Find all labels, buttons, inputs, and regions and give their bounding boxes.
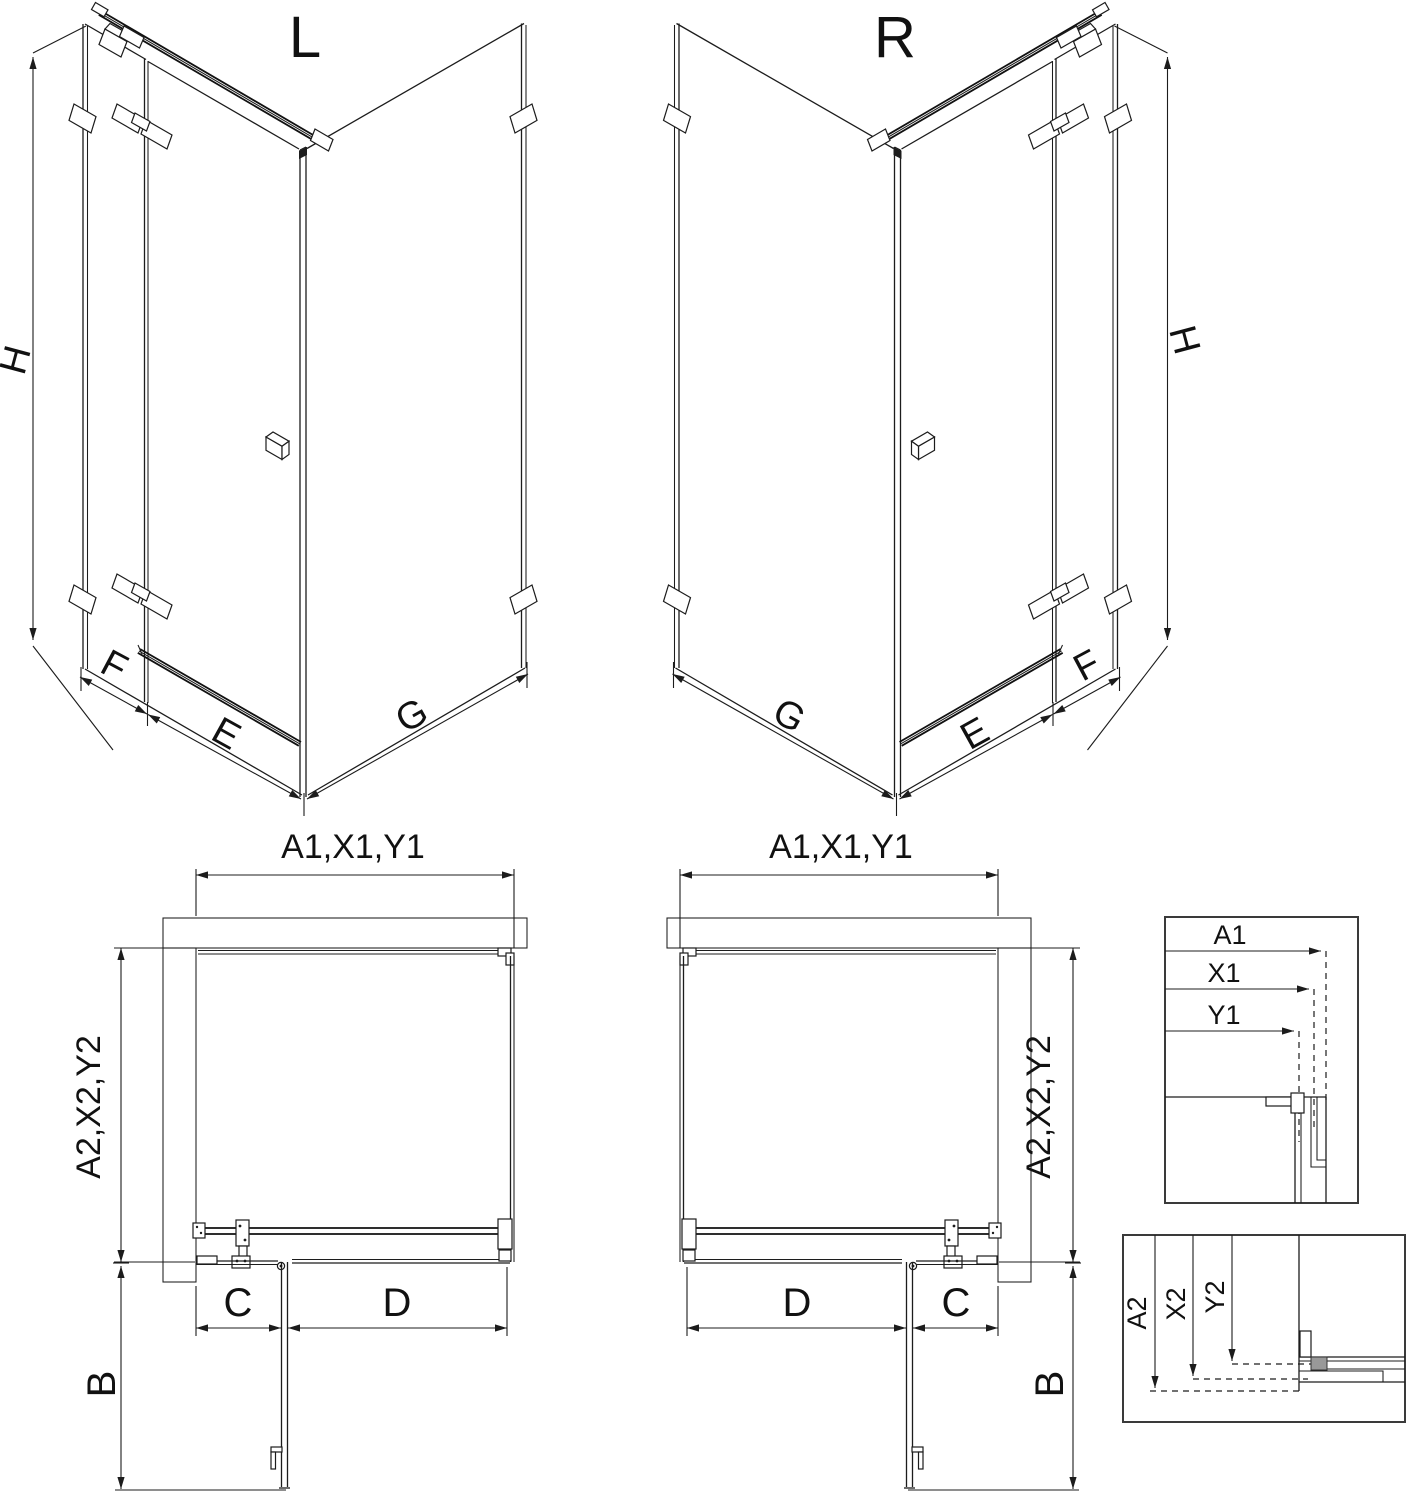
door-swing-label-left: B: [80, 1371, 124, 1398]
detail-depth-label-a2: A2: [1122, 1296, 1152, 1329]
detail-depth-label-x2: X2: [1161, 1287, 1191, 1320]
fixed-segment-label-right: C: [942, 1281, 971, 1325]
door-segment-label-right: D: [783, 1281, 812, 1325]
plan-view-left: A1,X1,Y1 A2,X2,Y2 C D B: [70, 828, 527, 1490]
door-segment-label-left: D: [383, 1281, 412, 1325]
wall-hatched-top: [163, 918, 527, 948]
plan-depth-label-left: A2,X2,Y2: [70, 1035, 108, 1179]
plan-width-label-right: A1,X1,Y1: [769, 828, 913, 866]
wall-hatched-side: [163, 948, 196, 1282]
technical-diagram-page: L H F E G R H F E G A1,X1,Y1 A2,X2,Y2 C …: [0, 0, 1416, 1499]
variant-label-right: R: [874, 5, 916, 70]
plan-depth-label-right: A2,X2,Y2: [1020, 1035, 1058, 1179]
door-label-right: E: [954, 709, 997, 758]
shower-enclosure-diagram: L H F E G R H F E G A1,X1,Y1 A2,X2,Y2 C …: [0, 0, 1416, 1499]
wall-hatched-top: [667, 918, 1031, 948]
iso-view-left: L H F E G: [0, 3, 537, 817]
detail-width-label-y1: Y1: [1207, 1000, 1240, 1030]
variant-label-left: L: [289, 5, 321, 70]
detail-panel-depth: A2 X2 Y2: [1122, 1235, 1405, 1422]
return-panel-label-left: G: [389, 690, 435, 741]
detail-width-label-x1: X1: [1207, 958, 1240, 988]
plan-width-label-left: A1,X1,Y1: [281, 828, 425, 866]
wall-profile-section-side: [1299, 1331, 1405, 1382]
fixed-segment-label-left: C: [224, 1281, 253, 1325]
side-fixed-label-left: F: [94, 642, 134, 690]
height-label-left: H: [0, 341, 40, 378]
door-label-left: E: [205, 709, 248, 758]
detail-width-label-a1: A1: [1213, 920, 1246, 950]
door-swing-label-right: B: [1028, 1371, 1072, 1398]
return-panel-label-right: G: [766, 690, 812, 741]
iso-view-right: R H F E G: [664, 3, 1208, 817]
detail-depth-label-y2: Y2: [1200, 1280, 1230, 1313]
wall-profile-section-top: [1266, 1093, 1326, 1203]
side-fixed-label-right: F: [1067, 642, 1107, 690]
detail-panel-width: A1 X1 Y1: [1165, 917, 1358, 1203]
plan-view-right: A1,X1,Y1 A2,X2,Y2 C D B: [667, 828, 1081, 1490]
